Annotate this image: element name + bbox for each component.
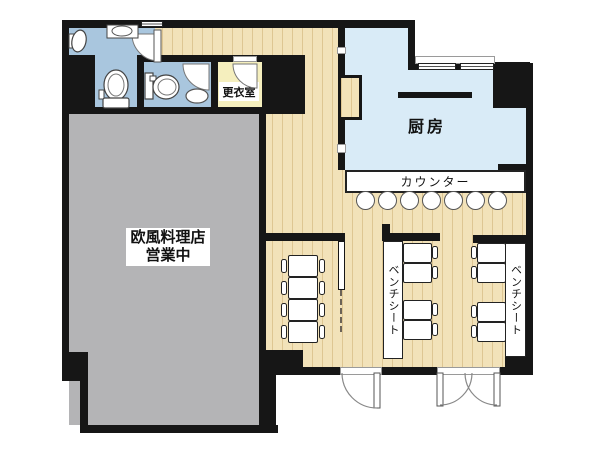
chair [281, 303, 287, 317]
table [477, 302, 506, 322]
chair [319, 281, 325, 295]
partition-dashed [340, 290, 342, 332]
toilet-room-1-lower [95, 55, 137, 107]
wall [338, 152, 345, 170]
entrance-double-door [437, 373, 500, 406]
wall-block [505, 357, 533, 375]
wall [473, 235, 526, 243]
chair [471, 305, 477, 318]
table [403, 263, 432, 283]
restaurant-name: 欧風料理店 [130, 229, 205, 247]
chair [432, 266, 438, 279]
table [288, 277, 318, 299]
changing-room-label: 更衣室 [219, 82, 259, 101]
bench-seat-right: ベンチシート [505, 243, 526, 357]
table [288, 255, 318, 277]
entrance-threshold [437, 367, 500, 375]
counter: カウンター [345, 170, 526, 193]
wall-block [67, 55, 95, 107]
kitchen-door-opening [337, 144, 346, 153]
table [403, 300, 432, 320]
table [403, 320, 432, 340]
toilet-room-2 [144, 62, 211, 107]
wall [137, 55, 144, 114]
restaurant-status-label: 欧風料理店 営業中 [126, 228, 210, 266]
counter-stool [400, 191, 419, 210]
wall [382, 233, 440, 241]
chair [432, 303, 438, 316]
chair [319, 303, 325, 317]
wall [259, 233, 345, 241]
counter-stool [356, 191, 375, 210]
kitchen-pillar [338, 75, 362, 120]
kitchen-door-opening [337, 47, 346, 54]
table [288, 321, 318, 343]
counter-label: カウンター [400, 173, 470, 190]
bench-seat-center-label: ベンチシート [385, 264, 401, 336]
entrance-threshold [340, 367, 382, 375]
chair [319, 325, 325, 339]
wall-block [259, 350, 303, 375]
wall [62, 107, 305, 114]
wall [338, 24, 345, 48]
chair [432, 246, 438, 259]
wall-block [262, 55, 305, 107]
counter-stool [444, 191, 463, 210]
chair [281, 325, 287, 339]
counter-stool [466, 191, 485, 210]
chair [319, 259, 325, 273]
toilet-room-1-upper [69, 28, 155, 58]
bench-seat-center: ベンチシート [383, 241, 403, 359]
changing-room-door-opening [233, 56, 257, 62]
counter-stool [378, 191, 397, 210]
wall [62, 20, 415, 28]
chair [281, 281, 287, 295]
window [460, 63, 494, 70]
chair [432, 323, 438, 336]
entrance-door [342, 373, 380, 408]
wall [303, 367, 340, 375]
partition [338, 241, 345, 290]
floor-plan: カウンター ベンチシート ベンチシート 厨房 更衣室 欧風料理店 [0, 0, 600, 450]
window [141, 21, 163, 27]
restaurant-status: 営業中 [145, 247, 190, 265]
wall [526, 63, 533, 375]
wall-block [493, 62, 530, 108]
chair [471, 246, 477, 259]
bench-seat-right-label: ベンチシート [508, 264, 524, 336]
table [477, 263, 506, 283]
chair [471, 325, 477, 338]
table [477, 243, 506, 263]
wall [211, 55, 218, 114]
counter-stool [488, 191, 507, 210]
table [477, 322, 506, 342]
counter-stool-row [356, 191, 507, 210]
chair [281, 259, 287, 273]
chair [471, 266, 477, 279]
table [288, 299, 318, 321]
counter-stool [422, 191, 441, 210]
kitchen-label: 厨房 [403, 114, 451, 136]
window [418, 63, 456, 70]
kitchen-equipment [398, 92, 472, 98]
wall [382, 367, 437, 375]
wall [408, 20, 415, 70]
vacant-restaurant-room [69, 114, 259, 425]
table [403, 243, 432, 263]
wall [80, 425, 278, 433]
